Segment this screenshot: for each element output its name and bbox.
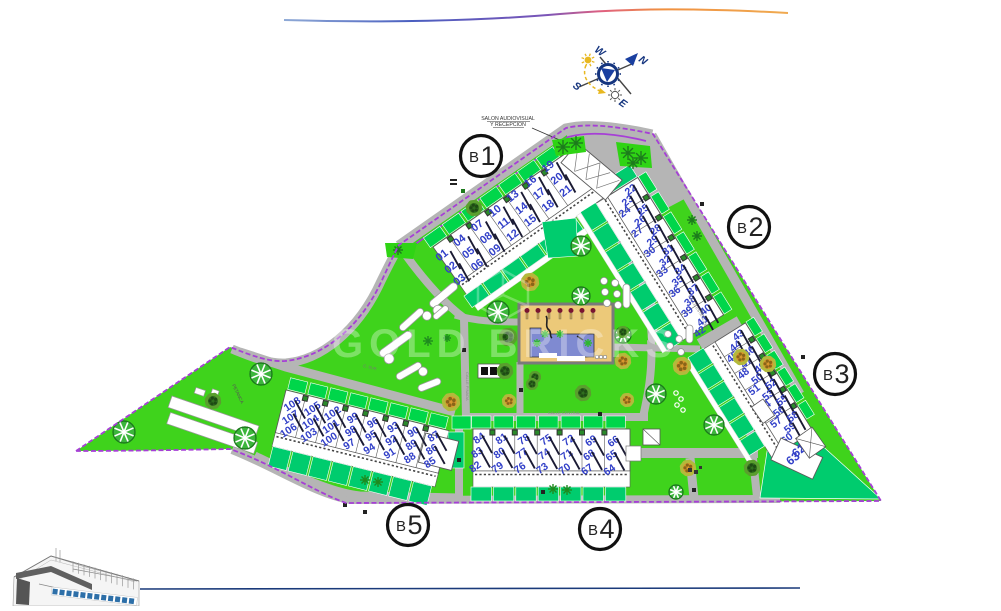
svg-text:1: 1	[480, 141, 495, 171]
svg-text:4: 4	[599, 514, 614, 544]
svg-text:3: 3	[834, 359, 849, 389]
svg-text:CALLE CENTRAL: CALLE CENTRAL	[548, 410, 581, 415]
svg-text:CALLE PINADA: CALLE PINADA	[465, 372, 470, 401]
svg-text:5: 5	[407, 510, 422, 540]
svg-text:B: B	[588, 522, 598, 539]
svg-text:B: B	[469, 149, 479, 166]
svg-text:B: B	[396, 518, 406, 535]
svg-text:B: B	[823, 367, 833, 384]
svg-text:Y RECEPCION: Y RECEPCION	[490, 122, 526, 128]
svg-text:2: 2	[748, 212, 763, 242]
svg-text:B: B	[737, 220, 747, 237]
svg-text:GOLD BRICKS: GOLD BRICKS	[332, 322, 678, 366]
